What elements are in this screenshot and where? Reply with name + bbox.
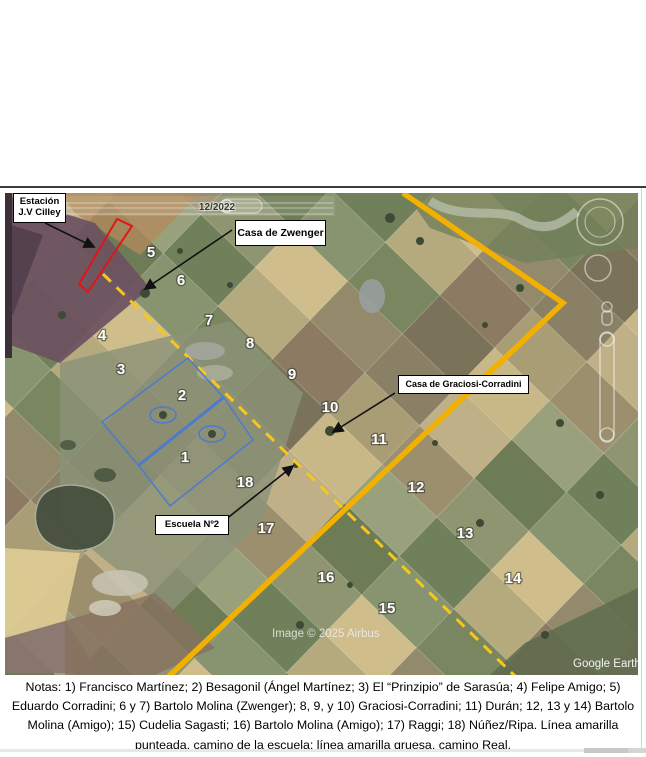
plot-number-14: 14 — [505, 570, 522, 587]
plot-number-2: 2 — [178, 387, 186, 404]
document-page: { "map": { "date_label": "12/2022", "wat… — [0, 0, 646, 757]
satellite-map-figure[interactable]: 12/2022 123456789101112131415161718 — [5, 193, 638, 675]
plot-number-11: 11 — [371, 431, 387, 448]
callout-estacion-line2: J.V Cilley — [18, 208, 60, 219]
figure-caption-notes: Notas: 1) Francisco Martínez; 2) Besagon… — [0, 676, 646, 757]
google-earth-logo: Google Earth — [573, 658, 638, 670]
plot-number-5: 5 — [147, 244, 155, 261]
callout-escuela-label: Escuela Nº2 — [165, 520, 219, 531]
callout-estacion: Estación J.V Cilley — [13, 193, 66, 223]
pond — [94, 468, 116, 482]
horizontal-scrollbar-thumb[interactable] — [584, 748, 628, 753]
callout-escuela: Escuela Nº2 — [155, 515, 229, 535]
dark-edge-strip — [5, 193, 12, 358]
callout-zwenger-label: Casa de Zwenger — [237, 227, 323, 239]
plot-number-1: 1 — [181, 449, 189, 466]
plot-number-17: 17 — [258, 520, 275, 537]
plot-number-4: 4 — [98, 327, 107, 344]
plot-number-15: 15 — [379, 600, 396, 617]
bare-patch — [359, 279, 385, 313]
callout-graciosi-label: Casa de Graciosi-Corradini — [405, 379, 521, 389]
plot-number-7: 7 — [205, 312, 213, 329]
plot-number-18: 18 — [237, 474, 254, 491]
lake — [35, 485, 114, 550]
imagery-date-label: 12/2022 — [199, 202, 236, 213]
plot-number-8: 8 — [246, 335, 254, 352]
satellite-map-svg: 12/2022 123456789101112131415161718 — [5, 193, 638, 675]
callout-graciosi: Casa de Graciosi-Corradini — [398, 375, 529, 394]
plot-number-3: 3 — [117, 361, 125, 378]
plot-number-9: 9 — [288, 366, 296, 383]
plot-number-10: 10 — [322, 399, 339, 416]
page-right-edge-line — [641, 188, 642, 748]
plot-number-12: 12 — [408, 479, 425, 496]
callout-zwenger: Casa de Zwenger — [235, 220, 326, 246]
horizontal-scrollbar-track[interactable] — [0, 749, 646, 752]
plot-number-6: 6 — [177, 272, 185, 289]
plot-number-13: 13 — [457, 525, 474, 542]
horizontal-rule — [0, 186, 646, 188]
salt-flat — [92, 570, 148, 596]
scrollbar-corner — [628, 748, 646, 753]
plot-number-16: 16 — [318, 569, 335, 586]
imagery-credit: Image © 2025 Airbus — [272, 628, 380, 640]
